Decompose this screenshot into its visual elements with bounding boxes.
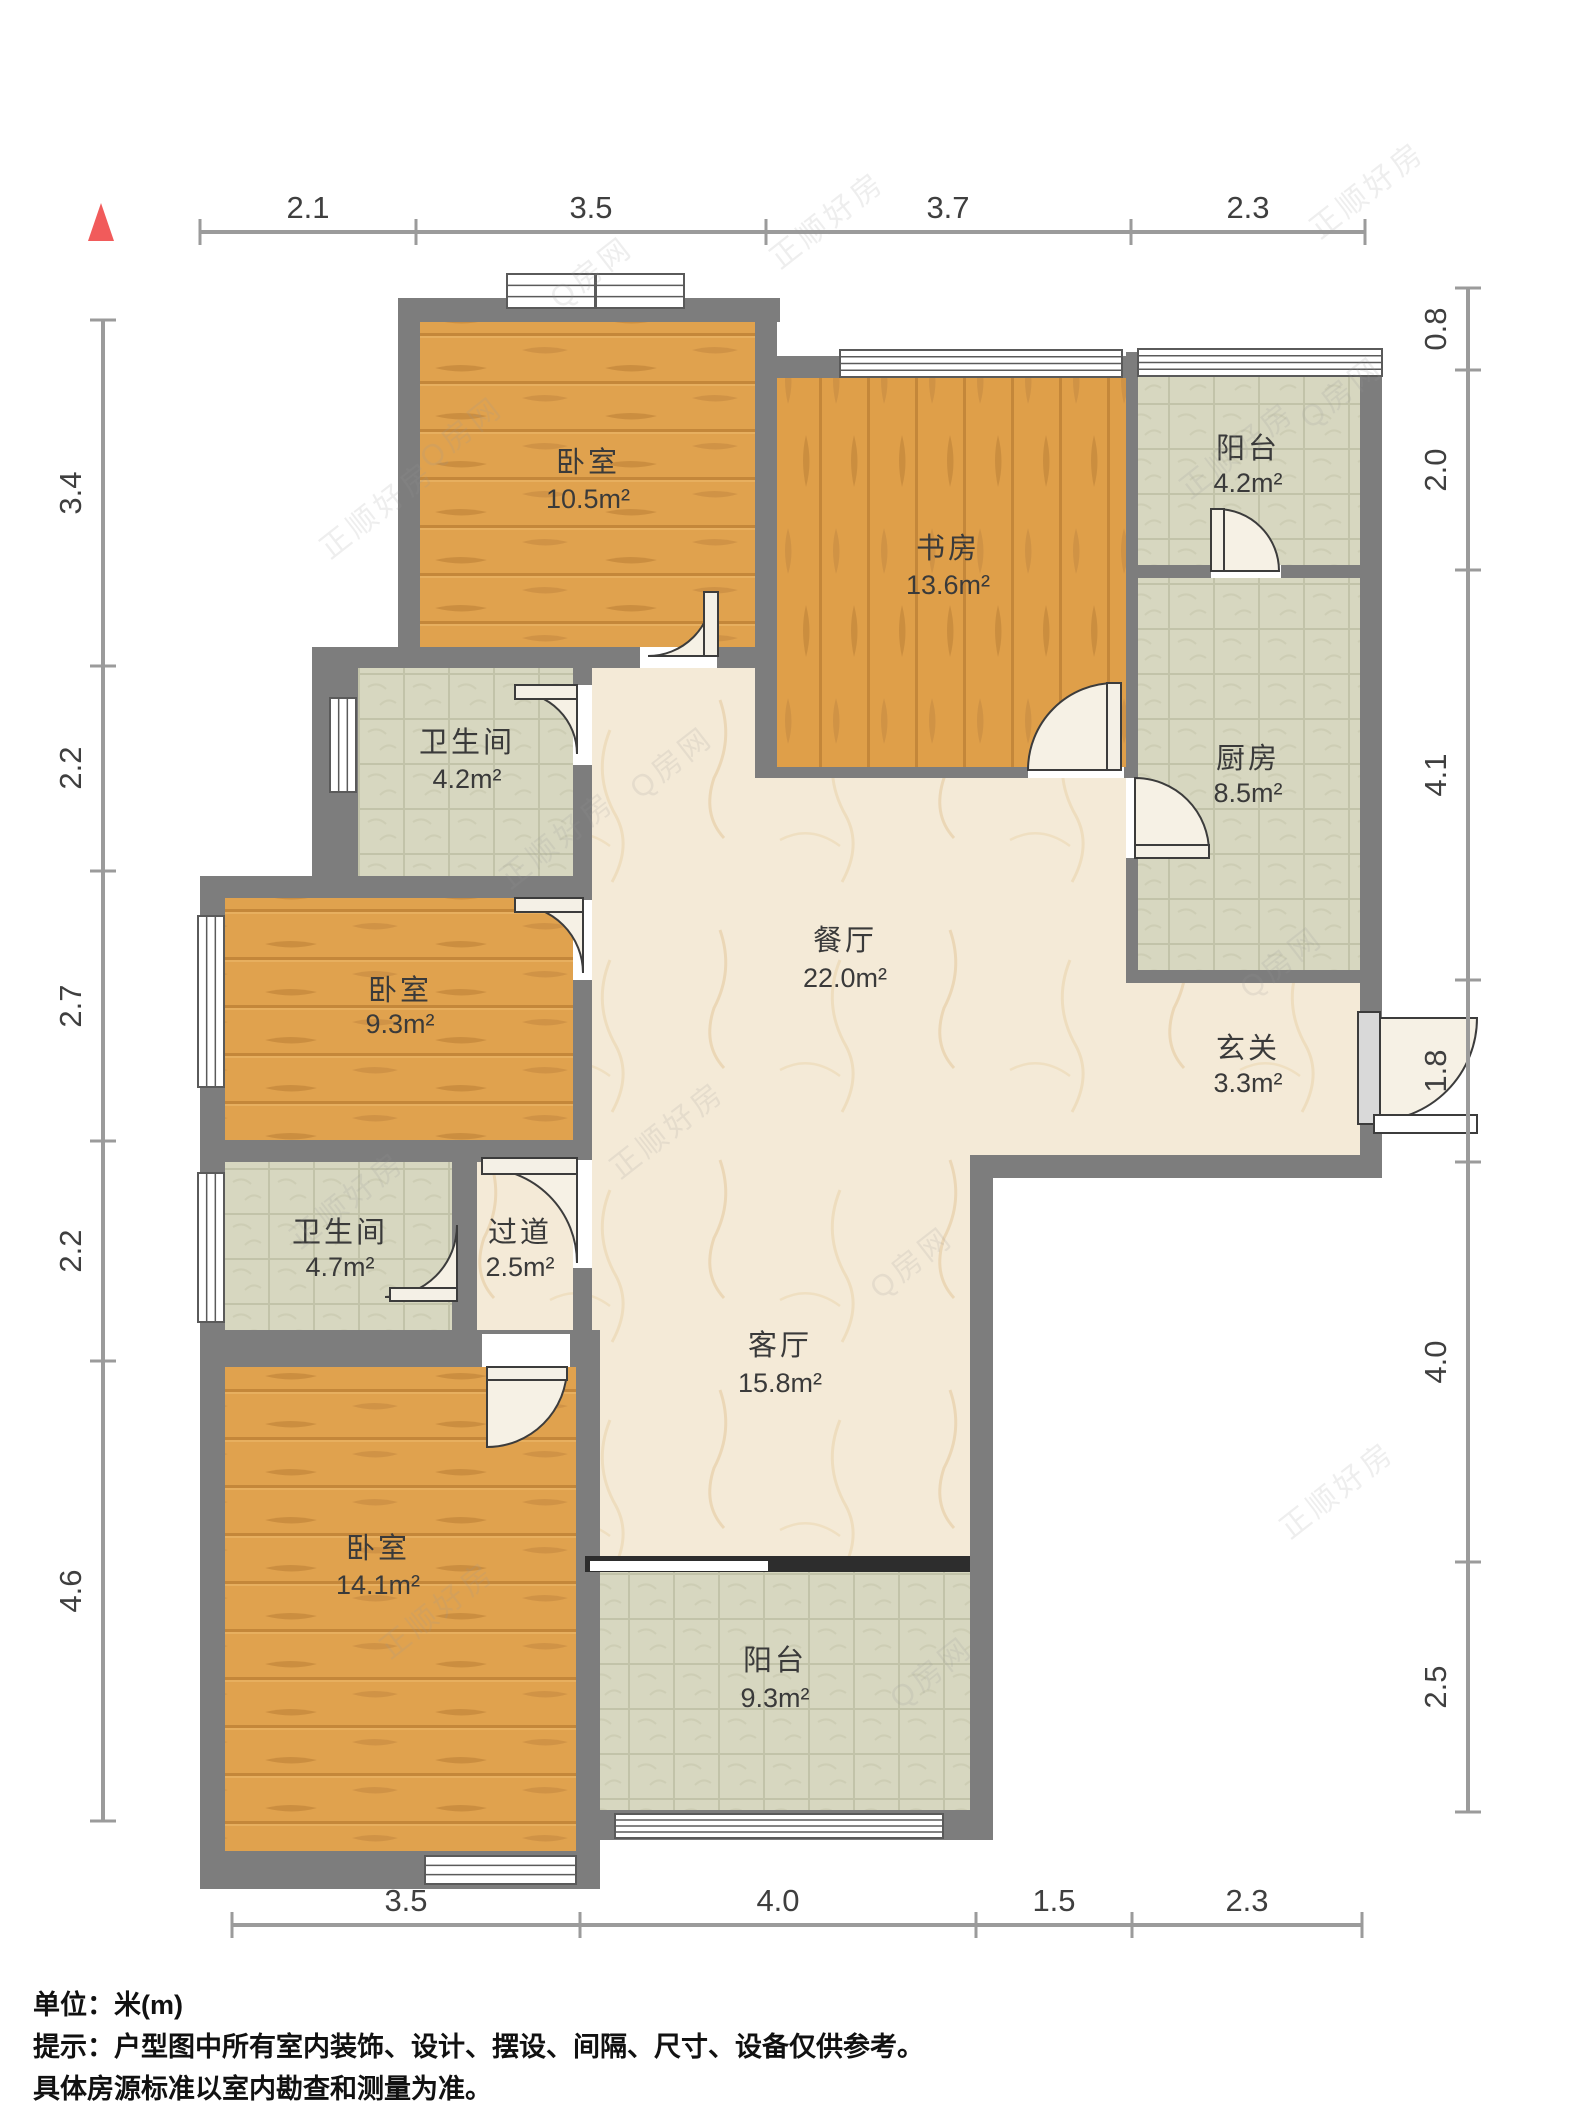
floorplan-stage: 卧室10.5m²书房13.6m²阳台4.2m²厨房8.5m²卫生间4.2m²卧室… (0, 0, 1571, 2113)
svg-text:15.8m²: 15.8m² (738, 1368, 822, 1398)
svg-text:13.6m²: 13.6m² (906, 570, 990, 600)
svg-text:1.5: 1.5 (1032, 1883, 1075, 1918)
svg-text:厨房: 厨房 (1216, 742, 1280, 775)
sliding-door-leaf (590, 1561, 768, 1571)
svg-text:14.1m²: 14.1m² (336, 1570, 420, 1600)
svg-text:2.7: 2.7 (53, 984, 88, 1027)
svg-text:2.2: 2.2 (53, 1229, 88, 1272)
svg-text:2.1: 2.1 (286, 190, 329, 225)
svg-text:4.6: 4.6 (53, 1569, 88, 1612)
svg-text:1.8: 1.8 (1418, 1049, 1453, 1092)
svg-text:2.0: 2.0 (1418, 448, 1453, 491)
window (198, 916, 224, 1087)
rooms-layer (222, 322, 1360, 1851)
svg-text:卧室: 卧室 (368, 974, 432, 1007)
svg-text:2.3: 2.3 (1226, 190, 1269, 225)
svg-text:3.5: 3.5 (384, 1883, 427, 1918)
wall (970, 1155, 1382, 1178)
svg-text:4.1: 4.1 (1418, 753, 1453, 796)
svg-text:3.7: 3.7 (926, 190, 969, 225)
balcony-slider-door (585, 1556, 970, 1572)
svg-text:玄关: 玄关 (1216, 1032, 1280, 1065)
footer-notes: 单位：米(m) 提示：户型图中所有室内装饰、设计、摆设、间隔、尺寸、设备仅供参考… (33, 1984, 924, 2110)
window (425, 1856, 576, 1884)
dim-bottom: 3.54.01.52.3 (232, 1883, 1362, 1938)
dim-left: 3.42.22.72.24.6 (53, 320, 116, 1821)
wall (1126, 352, 1138, 983)
svg-text:2.3: 2.3 (1225, 1883, 1268, 1918)
room-bedroom-3 (225, 1367, 576, 1851)
window (840, 350, 1122, 377)
svg-text:4.0: 4.0 (1418, 1340, 1453, 1383)
svg-text:客厅: 客厅 (748, 1329, 812, 1362)
svg-text:2.2: 2.2 (53, 746, 88, 789)
svg-text:3.3m²: 3.3m² (1213, 1068, 1282, 1098)
window (615, 1814, 943, 1838)
svg-text:2.5m²: 2.5m² (485, 1252, 554, 1282)
svg-text:3.4: 3.4 (53, 471, 88, 514)
svg-text:2.5: 2.5 (1418, 1665, 1453, 1708)
svg-text:10.5m²: 10.5m² (546, 484, 630, 514)
svg-text:4.2m²: 4.2m² (432, 764, 501, 794)
svg-text:卫生间: 卫生间 (419, 726, 515, 759)
window (330, 698, 356, 792)
watermark-text: 正顺好房 (1304, 136, 1431, 246)
window (198, 1173, 224, 1322)
svg-text:3.5: 3.5 (569, 190, 612, 225)
svg-text:4.7m²: 4.7m² (305, 1252, 374, 1282)
svg-text:4.0: 4.0 (756, 1883, 799, 1918)
svg-text:9.3m²: 9.3m² (740, 1683, 809, 1713)
svg-text:餐厅: 餐厅 (813, 924, 877, 957)
wall (970, 1178, 993, 1838)
wall (576, 1330, 600, 1889)
tip-note-line2: 具体房源标准以室内勘查和测量为准。 (33, 2068, 924, 2110)
svg-text:9.3m²: 9.3m² (365, 1009, 434, 1039)
watermark-text: 正顺好房 (1274, 1436, 1401, 1546)
floorplan-canvas: 卧室10.5m²书房13.6m²阳台4.2m²厨房8.5m²卫生间4.2m²卧室… (0, 0, 1571, 2113)
svg-text:书房: 书房 (916, 532, 980, 565)
svg-text:8.5m²: 8.5m² (1213, 778, 1282, 808)
svg-text:卧室: 卧室 (556, 446, 620, 479)
door-opening (482, 1334, 570, 1367)
svg-text:卧室: 卧室 (346, 1532, 410, 1565)
label-bedroom-2: 卧室9.3m² (365, 974, 434, 1039)
svg-text:22.0m²: 22.0m² (803, 963, 887, 993)
north-arrow-icon (88, 203, 114, 241)
tip-note-line1: 提示：户型图中所有室内装饰、设计、摆设、间隔、尺寸、设备仅供参考。 (33, 2026, 924, 2068)
unit-note: 单位：米(m) (33, 1984, 924, 2026)
svg-text:过道: 过道 (488, 1216, 552, 1249)
watermark-text: 正顺好房 (764, 166, 891, 276)
svg-text:0.8: 0.8 (1418, 307, 1453, 350)
svg-text:阳台: 阳台 (743, 1644, 807, 1677)
